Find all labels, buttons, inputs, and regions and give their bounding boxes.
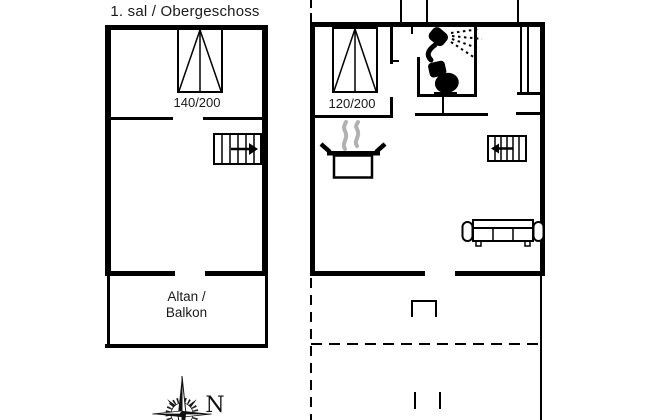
stove-pot-icon	[318, 116, 388, 180]
wall	[105, 25, 111, 276]
balcony-label: Altan / Balkon	[107, 289, 266, 321]
wall	[310, 22, 315, 276]
sofa-icon	[461, 218, 545, 248]
bed-size-label: 140/200	[166, 95, 228, 110]
door-opening-marker	[411, 300, 437, 302]
stairs-icon	[487, 135, 527, 162]
terrace-dashed-outline	[310, 278, 312, 420]
wall	[517, 92, 541, 95]
wall	[411, 27, 413, 34]
wall	[455, 271, 545, 276]
bed-icon	[332, 27, 378, 93]
steam	[344, 122, 358, 149]
balcony-label-line1: Altan /	[107, 289, 266, 305]
wall	[205, 271, 268, 276]
wall	[516, 112, 541, 115]
terrace-dashed-divider	[311, 343, 542, 345]
wall	[203, 117, 262, 120]
wall	[310, 271, 425, 276]
wall	[520, 27, 522, 93]
wall	[111, 117, 173, 120]
wall	[390, 97, 393, 117]
wall	[517, 0, 519, 22]
wall	[426, 0, 428, 22]
floorplan-page: 1. sal / Obergeschoss 140/200	[0, 0, 650, 420]
wall	[310, 0, 312, 8]
wall	[400, 0, 402, 22]
stairs-icon	[213, 133, 262, 165]
wall	[105, 271, 175, 276]
wall	[527, 27, 529, 93]
wall	[262, 25, 268, 276]
door-opening-marker	[435, 300, 437, 317]
wall	[439, 392, 441, 409]
bed-icon	[177, 28, 223, 93]
wall	[414, 392, 416, 409]
bed-size-label: 120/200	[321, 96, 383, 111]
page-title: 1. sal / Obergeschoss	[95, 3, 275, 20]
balcony-label-line2: Balkon	[107, 305, 266, 321]
terrace-edge-line	[540, 276, 542, 420]
toilet-icon	[428, 59, 464, 97]
wall	[390, 27, 393, 64]
wall	[105, 344, 268, 348]
door-opening-marker	[411, 300, 413, 317]
door-jamb-tick	[393, 60, 399, 62]
wall	[310, 13, 312, 22]
wall	[415, 113, 488, 116]
wall	[417, 57, 420, 97]
north-label: N	[203, 393, 227, 418]
